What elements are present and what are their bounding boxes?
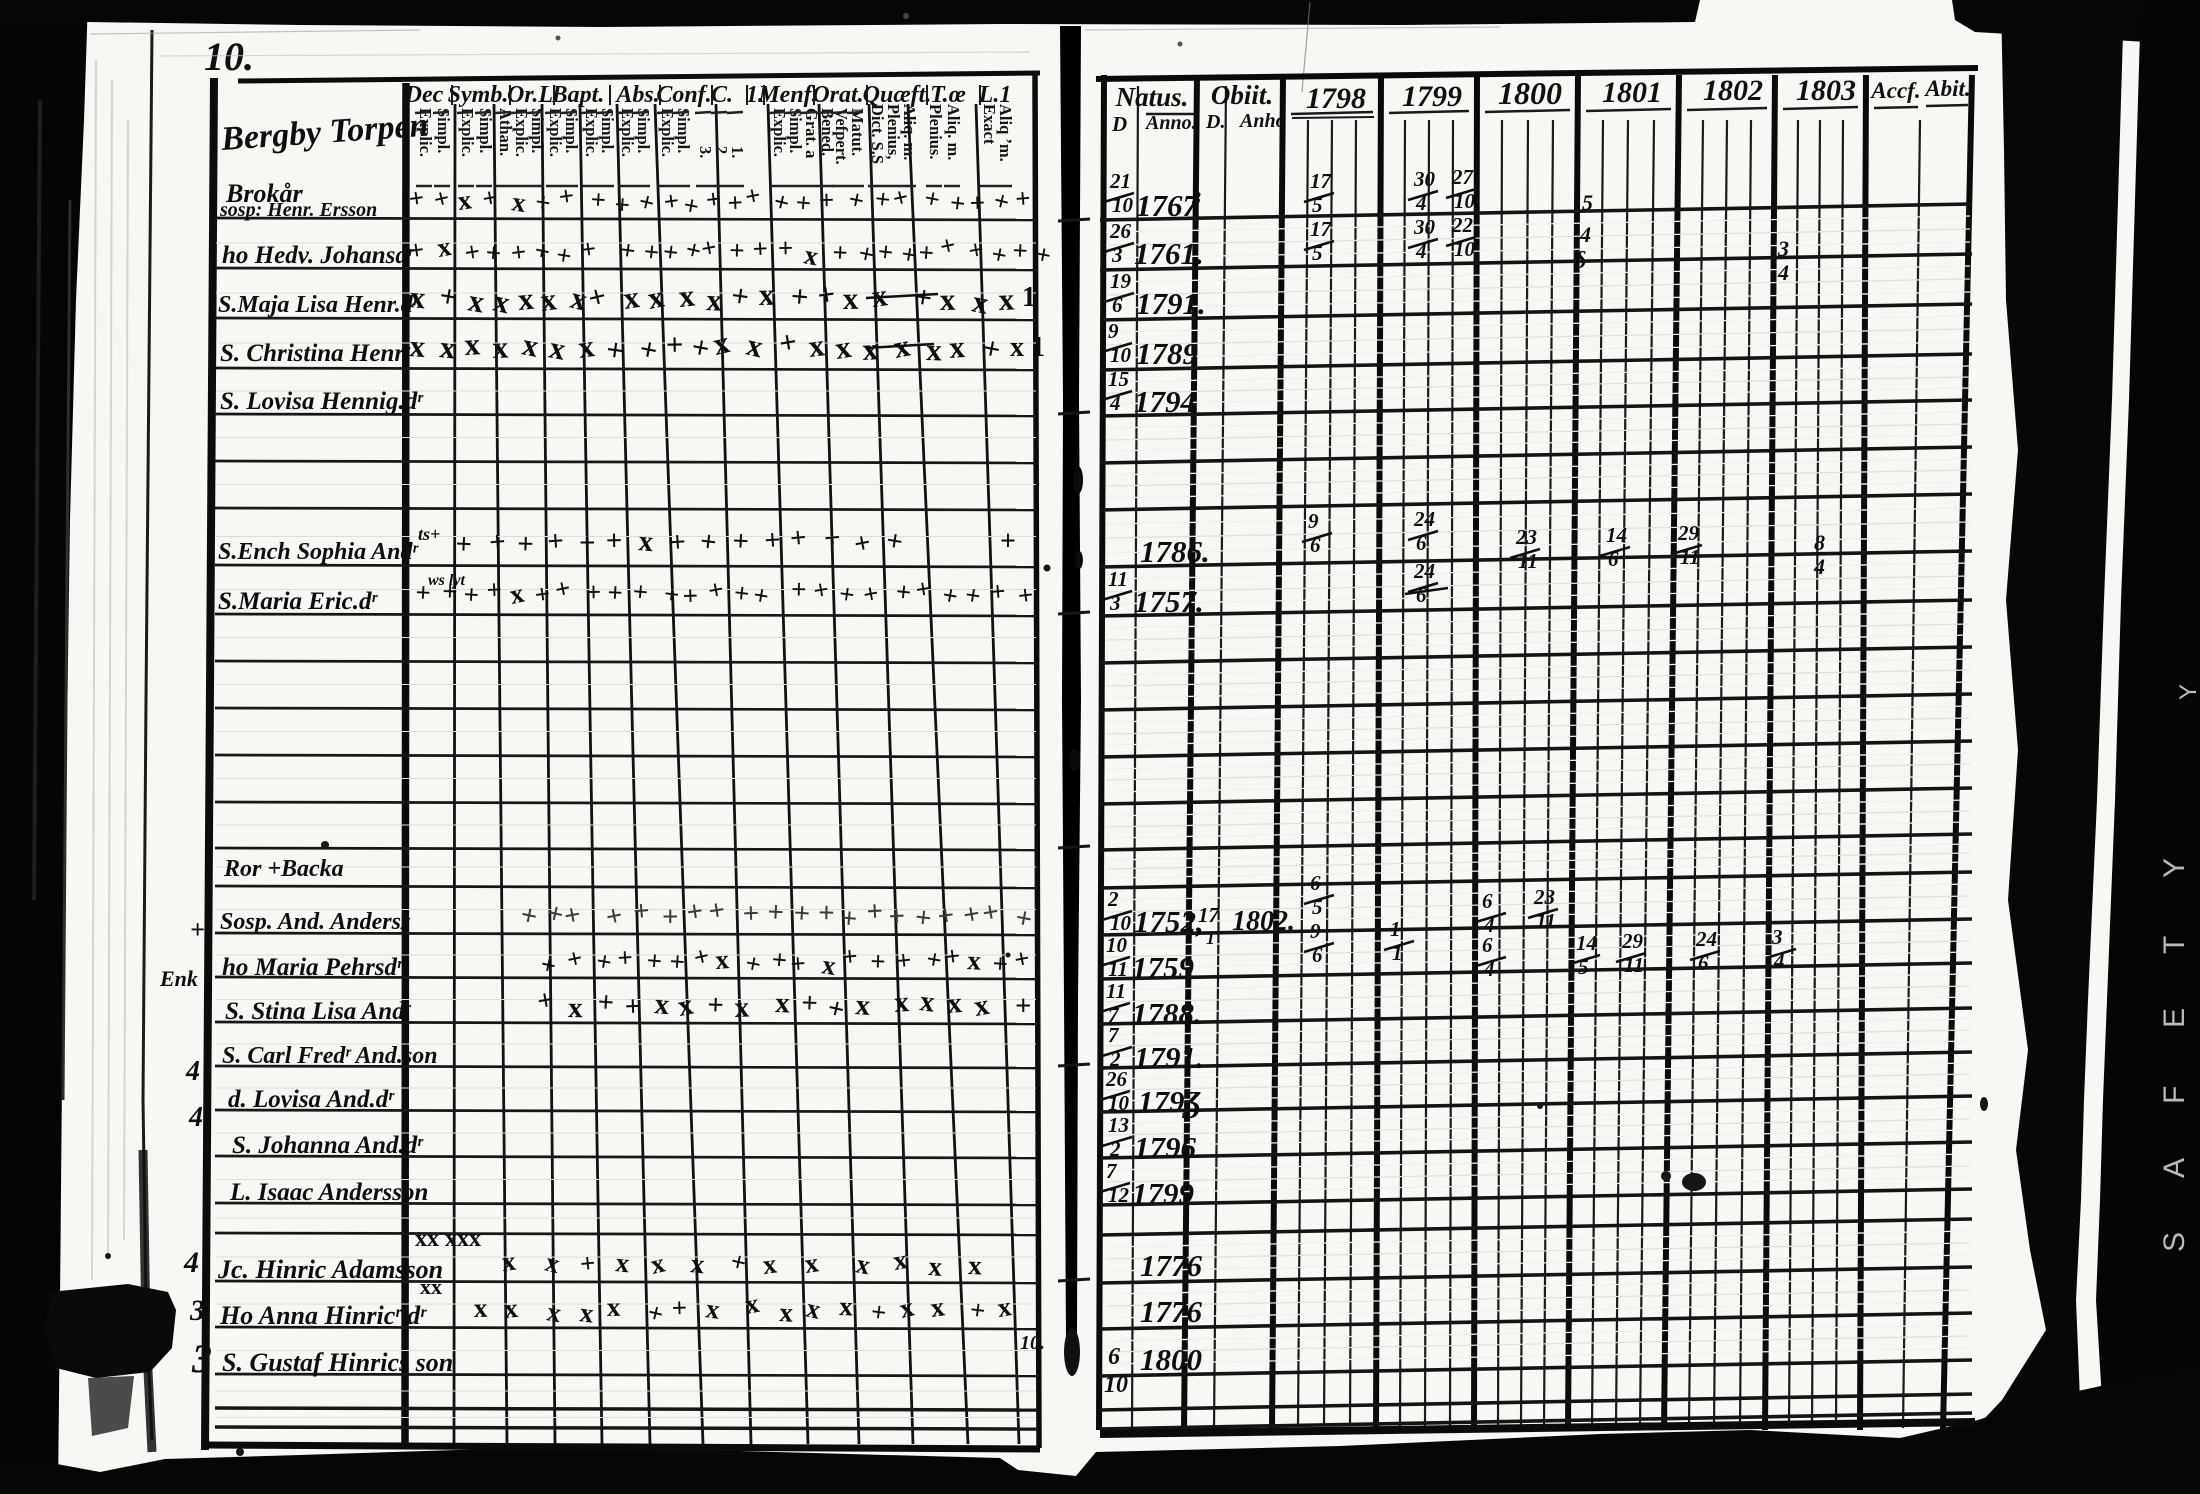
svg-text:ho Hedv. Johansdʳ: ho Hedv. Johansdʳ <box>222 242 415 269</box>
svg-text:Simpl.: Simpl. <box>528 108 547 153</box>
svg-text:Aliq ʼm.: Aliq ʼm. <box>996 104 1015 162</box>
svg-text:10: 10 <box>1112 193 1134 217</box>
svg-text:3: 3 <box>1109 591 1121 615</box>
svg-text:1796: 1796 <box>1134 1130 1197 1165</box>
svg-text:S.Maja Lisa Henr.dʳ: S.Maja Lisa Henr.dʳ <box>218 292 420 318</box>
svg-text:Anno.: Anno. <box>1144 112 1197 134</box>
svg-text:+: + <box>190 915 205 944</box>
svg-text:5: 5 <box>1312 241 1323 265</box>
svg-text:Or.L: Or.L <box>507 82 553 108</box>
svg-text:Simpl.: Simpl. <box>598 108 617 153</box>
svg-text:1752,: 1752, <box>1134 904 1204 939</box>
svg-text:6: 6 <box>1698 951 1709 975</box>
svg-text:7: 7 <box>1108 1023 1120 1047</box>
svg-text:Y: Y <box>2158 858 2191 878</box>
svg-text:Conf.: Conf. <box>656 82 711 108</box>
svg-text:6: 6 <box>1310 533 1321 557</box>
svg-text:C.: C. <box>711 82 733 108</box>
svg-text:4: 4 <box>1777 260 1789 285</box>
svg-text:5: 5 <box>1312 193 1323 217</box>
svg-text:6: 6 <box>1482 933 1493 957</box>
svg-text:3: 3 <box>1771 925 1783 949</box>
svg-text:xx xxx: xx xxx <box>415 1226 481 1252</box>
svg-text:4: 4 <box>1773 949 1785 973</box>
svg-text:19: 19 <box>1110 269 1132 293</box>
svg-text:Abit.: Abit. <box>1923 76 1970 101</box>
svg-text:S: S <box>2158 1232 2191 1252</box>
svg-text:L. Isaac Andersson: L. Isaac Andersson <box>229 1179 428 1206</box>
svg-text:24: 24 <box>1413 559 1435 583</box>
svg-text:S. Carl Fredʳ And.son: S. Carl Fredʳ And.son <box>222 1043 438 1069</box>
svg-text:ts+: ts+ <box>418 524 440 544</box>
svg-text:1788.: 1788. <box>1132 996 1202 1031</box>
svg-text:4: 4 <box>1813 554 1825 579</box>
svg-text:7: 7 <box>1106 1159 1118 1183</box>
svg-text:Obiit.: Obiit. <box>1211 80 1273 110</box>
svg-text:Jc. Hinric Adamsson: Jc. Hinric Adamsson <box>217 1255 443 1284</box>
svg-text:6: 6 <box>1310 871 1321 895</box>
svg-text:Orat.: Orat. <box>812 82 863 108</box>
svg-text:1: 1 <box>1206 928 1215 948</box>
svg-text:5: 5 <box>1582 190 1593 215</box>
svg-text:17: 17 <box>1310 217 1333 241</box>
svg-text:6: 6 <box>1416 583 1427 607</box>
svg-text:4: 4 <box>1579 222 1591 247</box>
svg-text:Y: Y <box>2175 684 2200 700</box>
svg-text:13: 13 <box>1108 1113 1129 1137</box>
svg-text:A: A <box>2158 1158 2191 1178</box>
svg-text:6: 6 <box>1312 943 1323 967</box>
svg-text:10: 10 <box>1104 1372 1128 1398</box>
svg-text:9: 9 <box>1108 319 1119 343</box>
svg-text:S.Maria Eric.dʳ: S.Maria Eric.dʳ <box>218 588 379 615</box>
svg-text:Natus.: Natus. <box>1115 82 1189 112</box>
svg-text:ho Maria Pehrsdʳ: ho Maria Pehrsdʳ <box>222 954 404 981</box>
svg-text:6: 6 <box>1482 889 1493 913</box>
svg-text:5: 5 <box>1312 895 1323 919</box>
svg-text:26: 26 <box>1109 219 1132 243</box>
svg-text:179Ʒ: 179Ʒ <box>1138 1084 1202 1119</box>
svg-text:11: 11 <box>1108 567 1128 591</box>
svg-text:11: 11 <box>1108 957 1128 981</box>
svg-text:1799: 1799 <box>1132 1176 1194 1211</box>
svg-text:1.: 1. <box>728 146 747 158</box>
svg-text:D: D <box>1111 112 1127 136</box>
svg-text:d. Lovisa And.dʳ: d. Lovisa And.dʳ <box>228 1086 395 1113</box>
svg-text:24: 24 <box>1695 927 1717 951</box>
svg-text:x 1: x 1 <box>1010 332 1045 363</box>
svg-text:26: 26 <box>1105 1067 1128 1091</box>
svg-text:Plenius.: Plenius. <box>926 104 945 159</box>
svg-text:6: 6 <box>1416 531 1427 555</box>
svg-text:10: 10 <box>1108 1091 1130 1115</box>
svg-text:Ho Anna Hinricʳ dʳ: Ho Anna Hinricʳ dʳ <box>219 1301 427 1330</box>
svg-text:1759: 1759 <box>1132 950 1194 985</box>
svg-text:10.: 10. <box>204 34 254 79</box>
svg-text:4: 4 <box>1109 391 1121 415</box>
svg-text:11: 11 <box>1536 909 1556 933</box>
svg-text:4: 4 <box>188 1102 203 1133</box>
svg-text:1794: 1794 <box>1134 384 1196 419</box>
svg-text:Enk: Enk <box>159 966 198 991</box>
svg-text:15: 15 <box>1108 367 1129 391</box>
svg-text:6: 6 <box>1108 1344 1120 1370</box>
svg-text:3: 3 <box>189 1294 205 1327</box>
svg-text:ws lyt: ws lyt <box>428 572 465 589</box>
svg-text:1: 1 <box>1390 917 1401 941</box>
svg-text:3: 3 <box>1111 243 1123 267</box>
svg-text:1800: 1800 <box>1140 1342 1202 1377</box>
svg-text:Explic.: Explic. <box>458 108 477 157</box>
svg-text:1803: 1803 <box>1796 74 1856 107</box>
svg-text:8: 8 <box>1814 530 1825 555</box>
svg-text:9: 9 <box>1310 919 1321 943</box>
svg-text:Aliq. m.: Aliq. m. <box>944 104 963 160</box>
svg-text:Matut.: Matut. <box>848 108 867 156</box>
svg-text:1801: 1801 <box>1602 76 1662 109</box>
svg-text:1786.: 1786. <box>1140 534 1210 569</box>
svg-text:4: 4 <box>185 1056 200 1087</box>
svg-text:4: 4 <box>1415 239 1427 263</box>
svg-text:17: 17 <box>1198 903 1221 927</box>
svg-text:24: 24 <box>1413 507 1435 531</box>
svg-text:3: 3 <box>1191 188 1201 208</box>
svg-text:29: 29 <box>1677 521 1700 545</box>
svg-text:Bapt.: Bapt. <box>551 82 605 108</box>
svg-text:11: 11 <box>1624 953 1644 977</box>
svg-text:4: 4 <box>1483 957 1495 981</box>
svg-text:1799: 1799 <box>1402 80 1462 113</box>
svg-text:1761.: 1761. <box>1134 236 1204 271</box>
svg-text:4: 4 <box>1415 191 1427 215</box>
svg-text:S. Gustaf Hinrics son: S. Gustaf Hinrics son <box>222 1348 453 1377</box>
svg-text:D.: D. <box>1205 111 1225 133</box>
svg-text:Anho: Anho <box>1238 110 1286 132</box>
svg-text:10: 10 <box>1106 933 1128 957</box>
svg-text:Dec: Dec <box>404 82 444 108</box>
svg-text:Ror +Backa: Ror +Backa <box>223 856 344 882</box>
svg-text:1798: 1798 <box>1306 82 1366 115</box>
svg-text:Simpl.: Simpl. <box>674 108 693 153</box>
svg-text:Sosp. And. Andersz: Sosp. And. Andersz <box>220 909 411 935</box>
svg-text:23: 23 <box>1533 885 1555 909</box>
svg-text:1802: 1802 <box>1703 74 1763 107</box>
svg-text:9: 9 <box>1308 509 1319 533</box>
svg-text:δ: δ <box>1574 248 1586 274</box>
svg-text:1802.: 1802. <box>1232 906 1295 937</box>
svg-text:29: 29 <box>1621 929 1644 953</box>
svg-text:30: 30 <box>1413 167 1436 191</box>
svg-text:4: 4 <box>183 1246 199 1279</box>
svg-text:Simpl.: Simpl. <box>476 108 495 153</box>
svg-text:10.: 10. <box>1020 1332 1045 1354</box>
svg-text:6: 6 <box>1112 293 1123 317</box>
svg-text:E: E <box>2158 1008 2191 1028</box>
svg-text:1791.: 1791. <box>1136 286 1206 321</box>
svg-text:23: 23 <box>1515 525 1537 549</box>
svg-text:Symb.: Symb. <box>448 82 509 108</box>
svg-text:S. Stina Lisa Andʳ: S. Stina Lisa Andʳ <box>225 998 412 1025</box>
svg-text:17: 17 <box>1310 169 1333 193</box>
svg-text:27: 27 <box>1451 165 1475 189</box>
svg-text:1800: 1800 <box>1498 75 1562 111</box>
svg-text:21: 21 <box>1109 169 1131 193</box>
svg-text:Abs.: Abs. <box>614 82 659 108</box>
svg-text:3: 3 <box>1777 236 1789 261</box>
svg-text:1: 1 <box>1392 941 1403 965</box>
svg-text:10: 10 <box>1454 189 1476 213</box>
svg-text:2: 2 <box>1109 1137 1121 1161</box>
svg-text:5: 5 <box>1578 955 1589 979</box>
svg-text:Simpl.: Simpl. <box>434 108 453 153</box>
svg-text:14: 14 <box>1606 523 1627 547</box>
svg-text:Simpl.: Simpl. <box>634 108 653 153</box>
svg-text:10: 10 <box>1454 237 1476 261</box>
svg-text:Menf.: Menf. <box>757 82 817 108</box>
svg-text:10: 10 <box>1110 911 1132 935</box>
svg-text:1791.: 1791. <box>1134 1040 1204 1075</box>
svg-text:1776: 1776 <box>1140 1248 1203 1283</box>
svg-text:Aliq. m.: Aliq. m. <box>900 104 919 160</box>
svg-text:11: 11 <box>1106 979 1126 1003</box>
svg-text:1789: 1789 <box>1136 336 1198 371</box>
svg-text:1: 1 <box>1022 282 1036 313</box>
svg-text:S. Christina Henrʳ: S. Christina Henrʳ <box>220 340 411 367</box>
svg-text:3: 3 <box>191 1336 212 1381</box>
svg-text:22: 22 <box>1451 213 1474 237</box>
svg-text:Accf.: Accf. <box>1869 78 1920 103</box>
svg-text:1767: 1767 <box>1136 188 1200 223</box>
svg-text:10: 10 <box>1110 343 1132 367</box>
svg-text:1757.: 1757. <box>1134 584 1204 619</box>
svg-text:S.Ench Sophia Andʳ: S.Ench Sophia Andʳ <box>218 539 420 565</box>
svg-text:11: 11 <box>1680 545 1700 569</box>
svg-text:S. Lovisa Hennig.dʳ: S. Lovisa Hennig.dʳ <box>220 388 424 415</box>
svg-text:+: + <box>1000 526 1016 557</box>
svg-text:12: 12 <box>1108 1183 1130 1207</box>
svg-text:sosp: Henr. Ersson: sosp: Henr. Ersson <box>219 199 377 221</box>
svg-text:S. Johanna And.dʳ: S. Johanna And.dʳ <box>232 1132 424 1159</box>
svg-text:14: 14 <box>1576 931 1597 955</box>
svg-text:30: 30 <box>1413 215 1436 239</box>
svg-text:11: 11 <box>1518 549 1538 573</box>
svg-text:6: 6 <box>1608 547 1619 571</box>
svg-text:Simpl.: Simpl. <box>562 108 581 153</box>
svg-text:T: T <box>2158 936 2191 954</box>
svg-text:xx: xx <box>420 1274 442 1299</box>
svg-text:1776: 1776 <box>1140 1294 1203 1329</box>
svg-text:F: F <box>2158 1086 2191 1104</box>
svg-text:2: 2 <box>1107 887 1119 911</box>
